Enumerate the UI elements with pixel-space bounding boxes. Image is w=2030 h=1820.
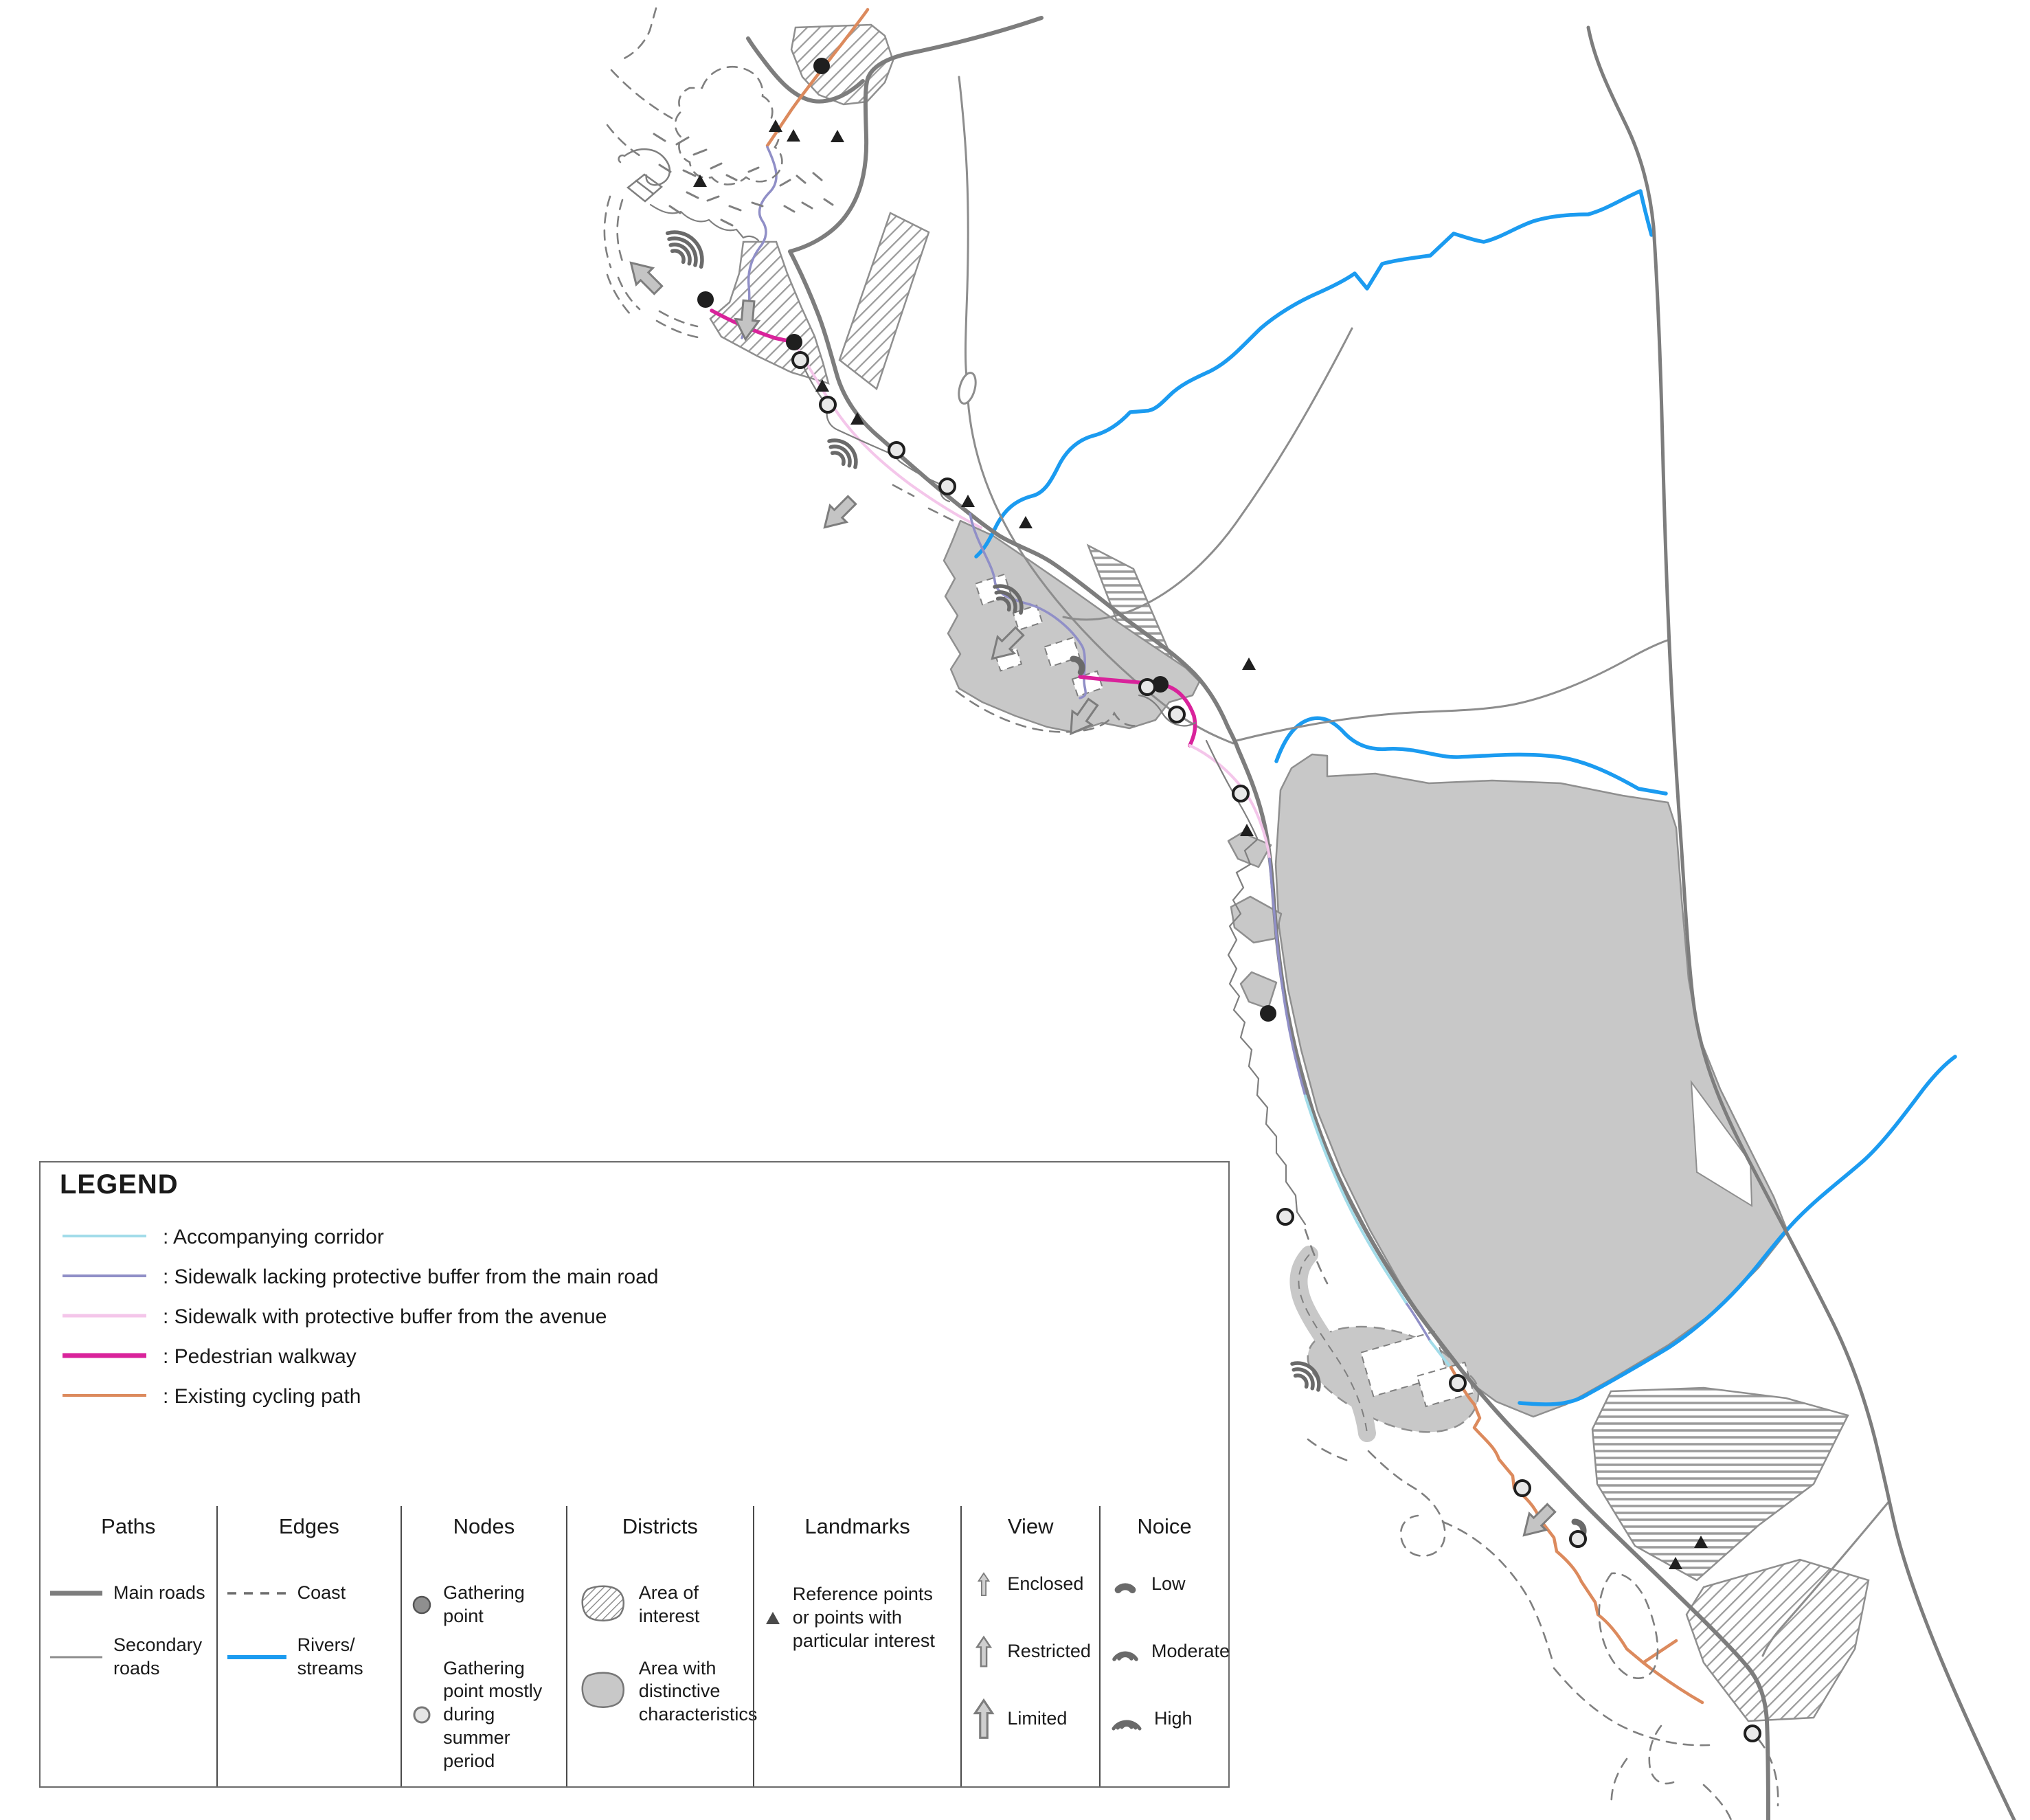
legend-row-sidewalk-buffer: : Sidewalk with protective buffer from t… — [60, 1297, 1215, 1337]
summer-gathering-point — [793, 352, 808, 368]
legend-item-secondary-roads: Secondary roads — [41, 1634, 216, 1681]
legend-item-reference-points: Reference points or points with particul… — [754, 1583, 961, 1652]
legend-item-area-of-interest: Area of interest — [567, 1582, 753, 1628]
gathering-point-icon — [410, 1593, 433, 1617]
legend-item-noise-high: High — [1101, 1697, 1228, 1741]
legend-row-sidewalk-no-buffer: : Sidewalk lacking protective buffer fro… — [60, 1257, 1215, 1297]
legend-column-edges: Edges Coast Rivers/ streams — [216, 1506, 401, 1786]
landmark-triangle — [1019, 516, 1033, 528]
legend-line-label: : Sidewalk lacking protective buffer fro… — [163, 1266, 658, 1289]
figure-page: { "legend": { "title": "LEGEND", "line_i… — [0, 0, 2030, 1820]
noise-high-icon — [1109, 1704, 1144, 1734]
summer-gathering-point — [1570, 1531, 1586, 1547]
summer-gathering-point — [820, 397, 835, 412]
legend-title: LEGEND — [60, 1169, 179, 1200]
legend-row-cycling-path: : Existing cycling path — [60, 1377, 1215, 1417]
column-header: Paths — [41, 1514, 216, 1539]
legend-column-noice: Noice Low Moderate High — [1099, 1506, 1228, 1786]
view-arrow — [622, 254, 666, 298]
column-header: Districts — [567, 1514, 753, 1539]
legend-row-pedestrian-walkway: : Pedestrian walkway — [60, 1337, 1215, 1377]
old-town-streets — [651, 205, 758, 240]
road-loop-symbol — [956, 371, 978, 405]
legend-item-rivers: Rivers/ streams — [218, 1634, 401, 1681]
legend-line-items: : Accompanying corridor : Sidewalk lacki… — [60, 1217, 1215, 1417]
noise-low-icon — [1109, 1572, 1142, 1597]
secondary-road — [1237, 640, 1669, 741]
summer-gathering-point — [1278, 1209, 1293, 1224]
summer-gathering-point-icon — [410, 1703, 433, 1727]
summer-gathering-point — [1140, 679, 1155, 695]
legend-item-main-roads: Main roads — [41, 1582, 216, 1605]
sidewalk-buffer-line-icon — [60, 1311, 163, 1323]
view-arrow-large-icon — [970, 1698, 997, 1740]
summer-gathering-point — [1169, 707, 1184, 722]
legend-box: LEGEND : Accompanying corridor : Sidewal… — [39, 1161, 1230, 1788]
legend-column-districts: Districts Area of interest Area with dis… — [566, 1506, 753, 1786]
legend-item-restricted: Restricted — [962, 1630, 1099, 1674]
legend-row-accompanying-corridor: : Accompanying corridor — [60, 1217, 1215, 1257]
noise-moderate-icon — [1109, 1638, 1142, 1665]
legend-line-label: : Existing cycling path — [163, 1385, 361, 1408]
column-header: View — [962, 1514, 1099, 1539]
secondary-road-line-icon — [49, 1652, 104, 1663]
legend-column-landmarks: Landmarks Reference points or points wit… — [753, 1506, 961, 1786]
summer-gathering-point — [1450, 1375, 1465, 1391]
legend-line-label: : Accompanying corridor — [163, 1226, 384, 1249]
river-line-icon — [226, 1652, 288, 1663]
legend-line-label: : Pedestrian walkway — [163, 1345, 357, 1369]
cycling-path — [1643, 1663, 1702, 1703]
legend-column-paths: Paths Main roads Secondary roads — [41, 1506, 216, 1786]
summer-gathering-point — [1515, 1481, 1530, 1496]
old-town-fort — [628, 175, 662, 201]
pedestrian-walkway-line-icon — [60, 1351, 163, 1363]
legend-item-coast: Coast — [218, 1582, 401, 1605]
summer-gathering-point — [1745, 1726, 1760, 1741]
gray-blob-icon — [576, 1670, 629, 1713]
legend-column-nodes: Nodes Gathering point Gathering point mo… — [401, 1506, 566, 1786]
gathering-point — [697, 291, 714, 308]
main-road-line-icon — [49, 1588, 104, 1599]
legend-item-noise-low: Low — [1101, 1562, 1228, 1606]
gathering-point — [813, 58, 830, 74]
summer-gathering-point — [1233, 786, 1248, 801]
landmark-triangle-icon — [763, 1608, 783, 1628]
column-header: Nodes — [402, 1514, 566, 1539]
area-of-interest-hatch — [839, 213, 929, 389]
legend-column-view: View Enclosed Restricted Limited — [960, 1506, 1099, 1786]
column-header: Noice — [1101, 1514, 1228, 1539]
legend-line-label: : Sidewalk with protective buffer from t… — [163, 1305, 607, 1329]
landmark-triangle — [961, 495, 975, 507]
area-of-interest-hatch — [710, 242, 828, 383]
legend-item-noise-moderate: Moderate — [1101, 1630, 1228, 1674]
landmark-triangle — [1242, 658, 1256, 670]
secondary-road — [959, 77, 968, 377]
legend-item-limited: Limited — [962, 1697, 1099, 1741]
legend-item-gathering-point: Gathering point — [402, 1582, 566, 1628]
river-upper — [976, 191, 1651, 557]
landmark-triangle — [831, 130, 844, 142]
column-header: Landmarks — [754, 1514, 961, 1539]
view-arrow — [816, 492, 860, 536]
cycling-path-line-icon — [60, 1391, 163, 1403]
accompanying-corridor-line-icon — [60, 1231, 163, 1244]
legend-item-area-distinctive: Area with distinctive characteristics — [567, 1657, 753, 1727]
landmark-triangle — [787, 129, 800, 142]
area-of-interest-hatch — [1687, 1560, 1869, 1721]
hatched-blob-icon — [576, 1584, 629, 1626]
summer-gathering-point — [889, 442, 904, 458]
gathering-point — [786, 334, 802, 350]
summer-gathering-point — [940, 479, 955, 494]
column-header: Edges — [218, 1514, 401, 1539]
view-arrow-small-icon — [970, 1569, 997, 1599]
view-arrow-medium-icon — [970, 1634, 997, 1670]
coast-islet — [1241, 972, 1276, 1009]
legend-item-enclosed: Enclosed — [962, 1562, 1099, 1606]
coast-dashed-line-icon — [226, 1588, 288, 1599]
gathering-point — [1260, 1005, 1276, 1022]
legend-item-summer-gathering-point: Gathering point mostly during summer per… — [402, 1657, 566, 1773]
legend-table: Paths Main roads Secondary roads Edges C… — [41, 1506, 1228, 1786]
sidewalk-no-buffer-line-icon — [60, 1271, 163, 1283]
